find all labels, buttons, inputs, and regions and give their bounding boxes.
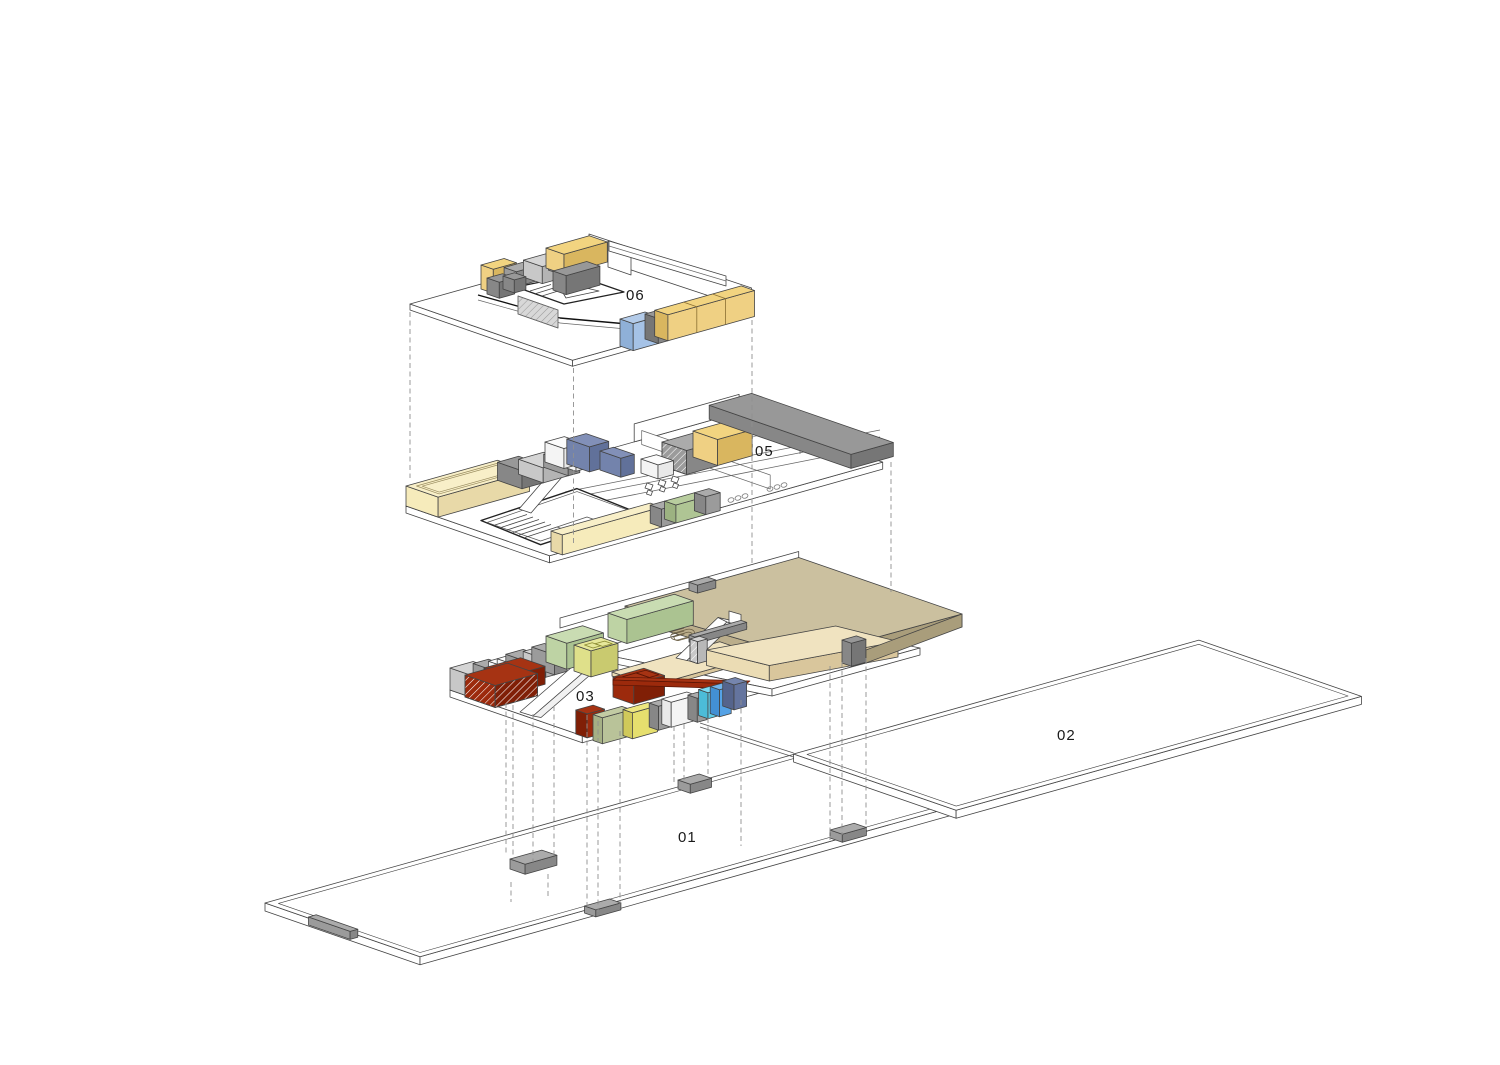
svg-text:01: 01 bbox=[678, 829, 697, 846]
svg-text:05: 05 bbox=[755, 443, 774, 460]
svg-text:02: 02 bbox=[1057, 727, 1076, 744]
svg-text:06: 06 bbox=[626, 287, 645, 304]
svg-text:03: 03 bbox=[576, 688, 595, 705]
